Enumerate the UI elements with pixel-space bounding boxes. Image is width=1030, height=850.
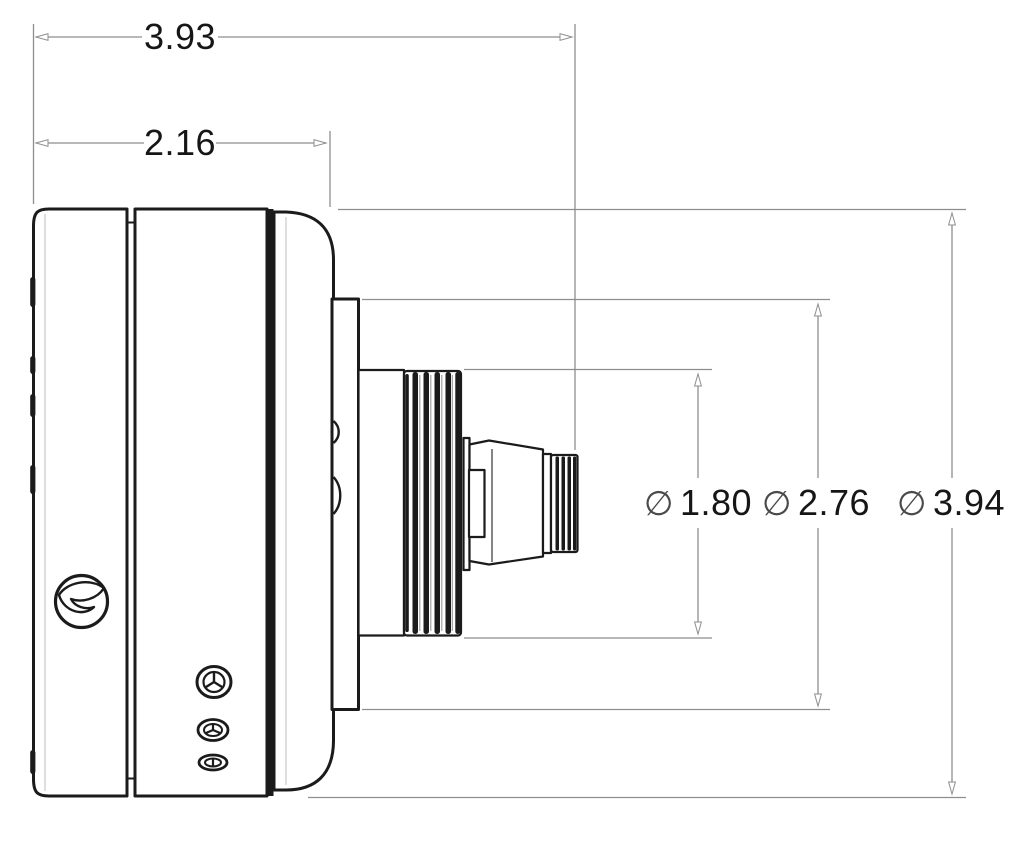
- arrowhead-up: [695, 374, 702, 386]
- dim-label-body-length: 2.16: [144, 122, 216, 163]
- dim-body-length: 2.16: [36, 122, 326, 163]
- lens-barrel: [359, 370, 405, 636]
- arrowhead-left: [36, 34, 48, 41]
- tip-thread-crest: [562, 457, 566, 551]
- drawing-canvas: 3.93 2.16 ∅1.80 ∅2.76: [0, 0, 1030, 850]
- arrowhead-down: [695, 622, 702, 634]
- thread-crest: [424, 372, 430, 634]
- thread-crest: [455, 372, 460, 634]
- connector-tip-threads: [551, 455, 578, 552]
- edge-rib: [30, 277, 35, 307]
- camera-front-cap: [34, 209, 128, 796]
- edge-rib: [30, 465, 35, 494]
- body-divider-band: [267, 209, 274, 796]
- lens-mount-ring: [332, 299, 359, 710]
- thread-crest: [405, 374, 409, 632]
- tip-thread-crest: [556, 457, 560, 551]
- edge-rib: [30, 394, 35, 417]
- tip-thread-crest: [573, 457, 576, 551]
- edge-rib: [30, 356, 35, 374]
- arrowhead-down: [815, 694, 822, 706]
- technical-drawing: 3.93 2.16 ∅1.80 ∅2.76: [0, 0, 1030, 850]
- edge-rib: [30, 750, 35, 774]
- connector-keyway: [469, 470, 485, 537]
- diameter-symbol: ∅: [762, 485, 792, 523]
- rear-connector: [464, 438, 578, 570]
- thread-crest: [435, 372, 441, 634]
- thread-crest: [446, 372, 452, 634]
- dim-label-body-diameter: ∅3.94: [897, 482, 1005, 523]
- dim-total-length: 3.93: [36, 16, 572, 57]
- camera-rear-section: [274, 212, 334, 790]
- diameter-symbol: ∅: [897, 485, 927, 523]
- dim-mount-diameter: ∅2.76: [762, 304, 870, 706]
- thread-crest: [413, 372, 419, 634]
- tip-thread-crest: [568, 457, 572, 551]
- arrowhead-up: [949, 213, 956, 225]
- camera-mid-section: [135, 209, 267, 796]
- lens-threads: [404, 371, 461, 636]
- arrowhead-left: [36, 140, 48, 147]
- diameter-symbol: ∅: [644, 485, 674, 523]
- dim-label-lens-diameter: ∅1.80: [644, 482, 752, 523]
- connector-step-ring: [543, 454, 551, 553]
- dim-label-mount-diameter: ∅2.76: [762, 482, 870, 523]
- arrowhead-right: [560, 34, 572, 41]
- dim-label-total-length: 3.93: [144, 16, 216, 57]
- arrowhead-down: [949, 782, 956, 794]
- arrowhead-right: [314, 140, 326, 147]
- dim-body-diameter: ∅3.94: [897, 213, 1005, 794]
- dim-lens-diameter: ∅1.80: [644, 374, 752, 634]
- arrowhead-up: [815, 304, 822, 316]
- camera-body: [30, 209, 577, 796]
